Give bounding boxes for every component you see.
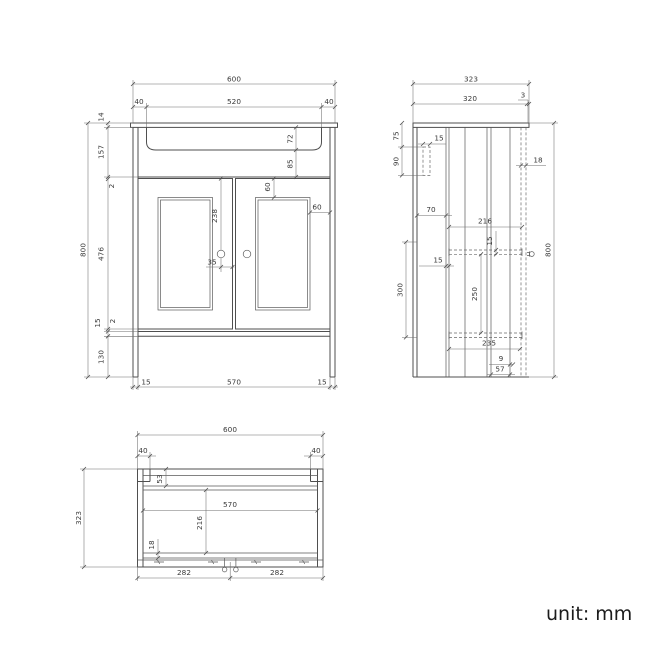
front-view-drawing: 600 40 520 40 800 14 157 2 476 15 2 130 … (78, 60, 358, 400)
dim-front-door-inset-side: 60 (312, 203, 322, 212)
door-knob-profile (529, 252, 534, 257)
side-view-drawing: 323 320 3 800 75 90 15 18 70 216 15 15 3… (386, 60, 586, 400)
dim-front-gap-top: 2 (107, 184, 116, 189)
dim-side-shelf-zone: 300 (396, 283, 405, 297)
bottom-dimension-lines (80, 431, 325, 581)
dim-front-basin-depth: 72 (286, 134, 295, 143)
dim-front-door-height: 476 (97, 247, 106, 261)
dim-bottom-knob-right: 282 (270, 568, 284, 577)
dim-bottom-right-lip: 40 (311, 446, 321, 455)
dim-front-overall-width: 600 (227, 75, 241, 84)
dim-front-door-inset-top: 60 (263, 182, 272, 192)
dim-bottom-front-rail: 18 (147, 540, 156, 550)
dim-front-left-panel: 15 (141, 378, 150, 387)
dim-side-leg-depth: 57 (495, 365, 505, 374)
dim-side-shelf-thickness: 15 (485, 236, 494, 245)
dim-front-basin-clearance: 85 (286, 159, 295, 168)
dim-front-basin-width: 520 (227, 97, 241, 106)
dim-front-handle-drop: 238 (210, 209, 219, 223)
bottom-cabinet-geometry (138, 469, 324, 572)
technical-drawing-sheet: 600 40 520 40 800 14 157 2 476 15 2 130 … (0, 0, 650, 650)
dim-side-door-thickness: 18 (533, 156, 543, 165)
dim-side-overall-height: 800 (544, 243, 553, 257)
dim-side-body-depth: 320 (463, 94, 477, 103)
front-dimension-labels: 600 40 520 40 800 14 157 2 476 15 2 130 … (79, 75, 334, 387)
side-dimension-lines (398, 80, 558, 379)
dim-side-back-clearance: 70 (426, 205, 436, 214)
dim-front-handle-offset: 35 (207, 258, 216, 267)
door-handle-left (217, 250, 225, 258)
dim-front-right-panel: 15 (317, 378, 326, 387)
dim-side-bracket-offset: 75 (392, 131, 401, 140)
dim-side-bracket-height: 90 (392, 157, 401, 167)
dim-bottom-knob-left: 282 (177, 568, 191, 577)
dim-bottom-left-lip: 40 (138, 446, 148, 455)
dim-side-toe-lip: 9 (499, 354, 504, 363)
dim-bottom-back-rail: 53 (155, 474, 164, 484)
dim-bottom-overall-width: 600 (223, 425, 237, 434)
dim-front-basin-zone: 157 (97, 145, 106, 159)
dim-front-inner-width: 570 (227, 378, 241, 387)
bottom-view-drawing: 600 40 40 323 53 570 216 18 282 282 (74, 411, 364, 606)
front-cabinet-geometry (131, 123, 338, 377)
dim-front-right-lip: 40 (324, 97, 334, 106)
hinge-marks (154, 560, 309, 564)
dim-front-gap-bottom: 2 (108, 319, 117, 324)
bottom-dimension-labels: 600 40 40 323 53 570 216 18 282 282 (74, 425, 321, 577)
dim-bottom-inner-width: 570 (223, 500, 237, 509)
shelf-hidden-lines (449, 250, 522, 337)
dim-bottom-overall-depth: 323 (74, 511, 83, 525)
dim-front-bottom-rail: 15 (93, 318, 102, 327)
door-handle-right (243, 250, 251, 258)
dim-side-bottom-depth: 235 (482, 339, 496, 348)
dim-front-plinth-height: 130 (97, 350, 106, 364)
dim-side-shelf-depth: 216 (478, 217, 492, 226)
dim-front-overall-height: 800 (79, 243, 88, 257)
dim-side-bracket-depth: 15 (434, 134, 443, 143)
side-dimension-labels: 323 320 3 800 75 90 15 18 70 216 15 15 3… (392, 75, 553, 374)
wall-bracket-hidden (423, 147, 430, 175)
dim-side-back-gap: 15 (433, 256, 442, 265)
dim-side-front-lip: 3 (521, 91, 526, 100)
unit-note: unit: mm (546, 603, 632, 625)
side-cabinet-geometry (413, 123, 534, 377)
dim-front-left-lip: 40 (134, 97, 144, 106)
dim-side-shelf-clearance: 250 (470, 287, 479, 301)
dim-side-overall-depth: 323 (464, 75, 478, 84)
dim-bottom-inner-depth: 216 (195, 516, 204, 530)
dim-front-top-thickness: 14 (97, 112, 106, 122)
front-dimension-lines (84, 80, 338, 390)
